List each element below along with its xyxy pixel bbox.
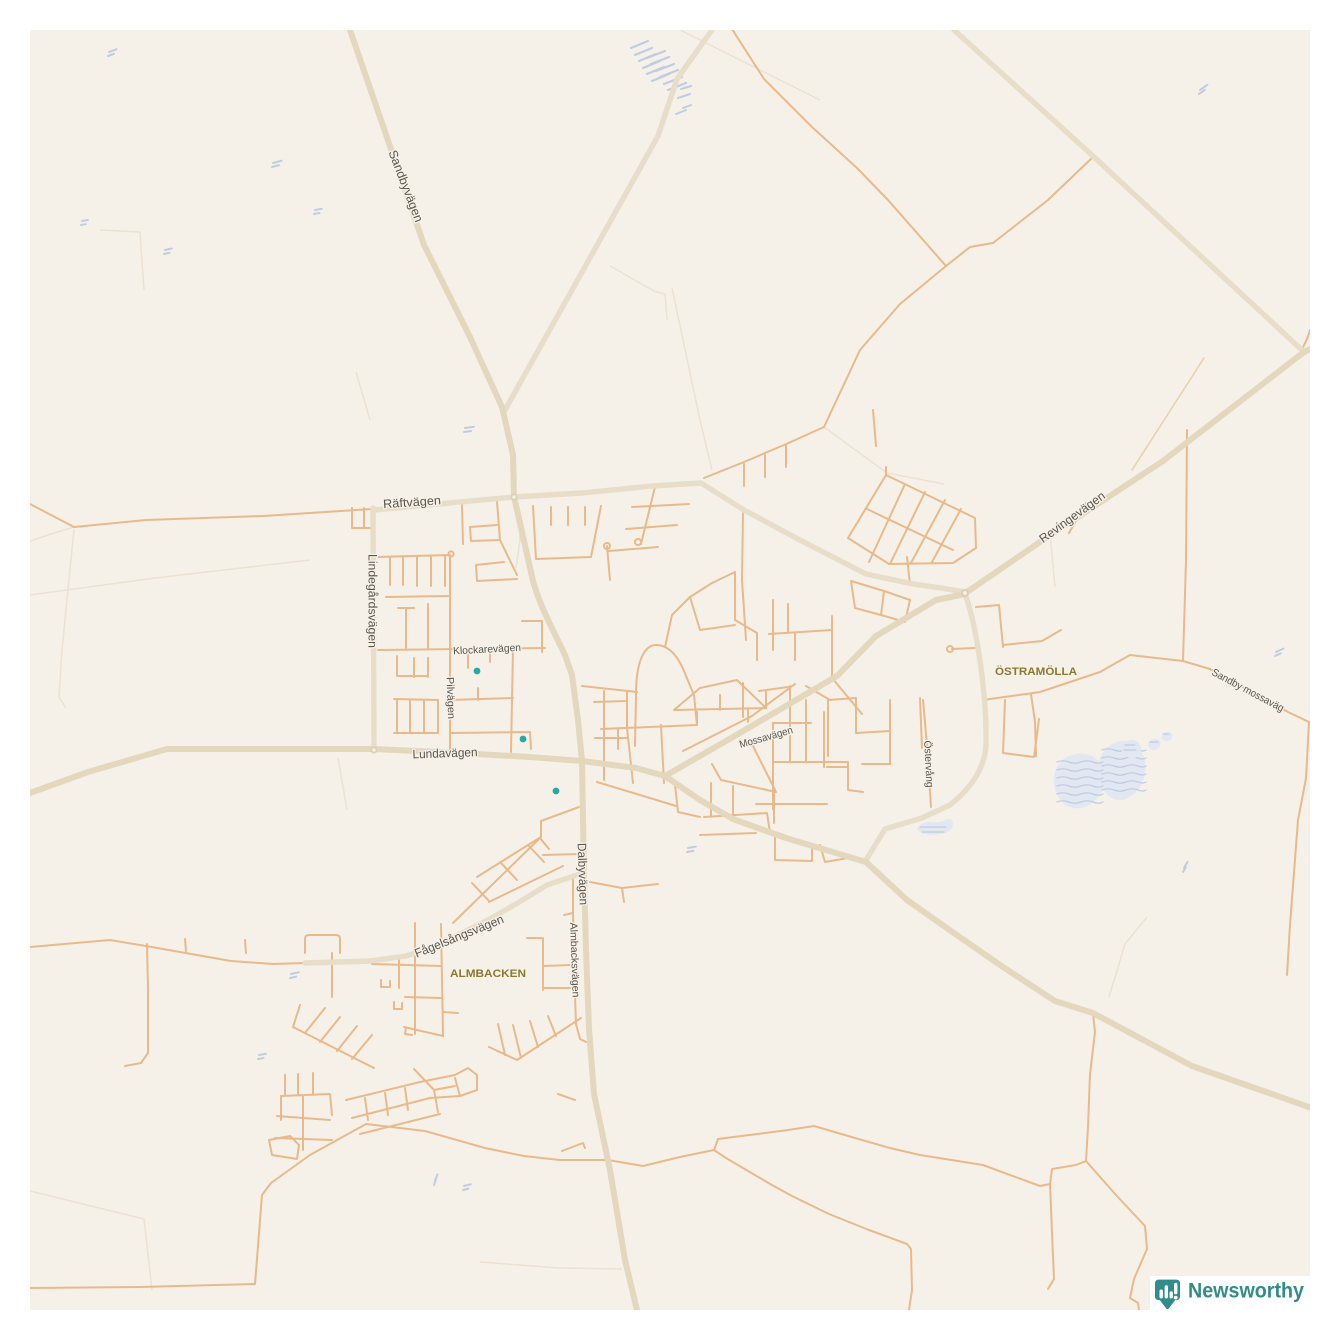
svg-text:ÖSTRAMÖLLA: ÖSTRAMÖLLA [995,665,1077,678]
svg-text:Dalbyvägen: Dalbyvägen [575,843,591,906]
svg-text:Pilvägen: Pilvägen [444,677,456,720]
svg-text:Lindegårdsvägen: Lindegårdsvägen [366,554,380,648]
svg-text:Lundavägen: Lundavägen [412,745,478,761]
svg-text:Östervång: Östervång [921,740,935,788]
svg-text:ALMBACKEN: ALMBACKEN [450,968,526,980]
svg-text:Newsworthy: Newsworthy [1188,1279,1304,1303]
